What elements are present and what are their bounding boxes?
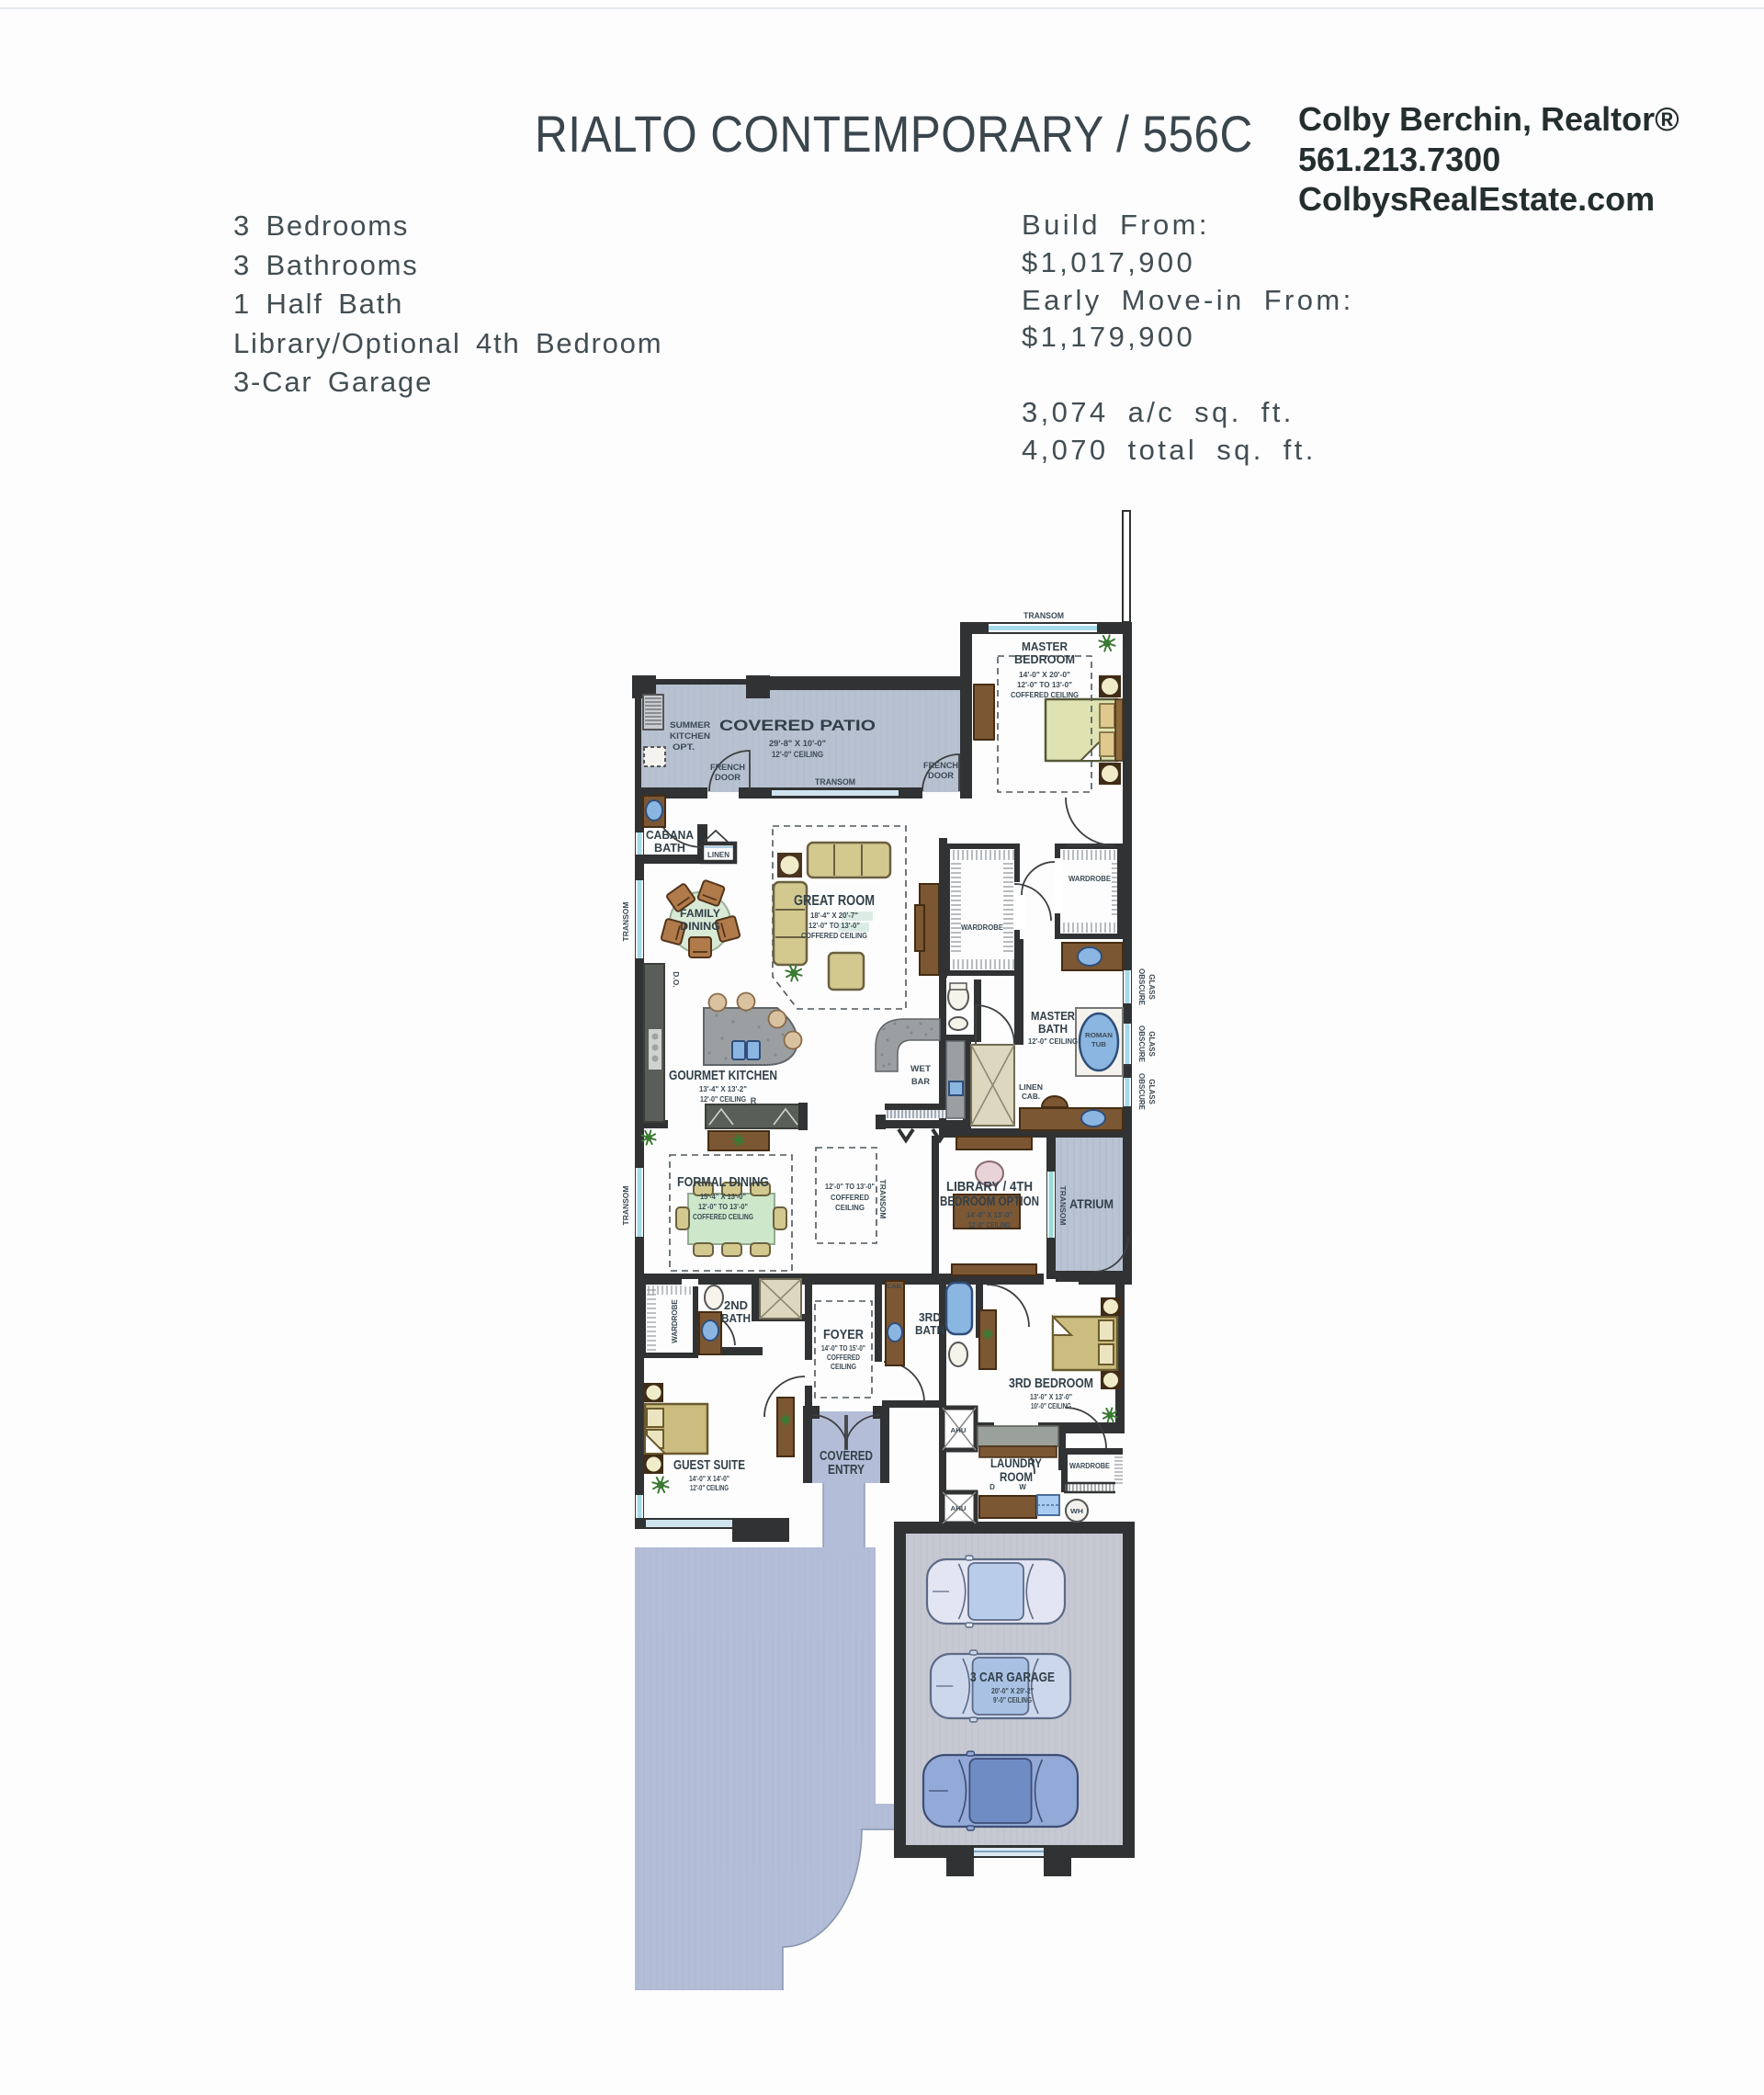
- svg-text:12'-0" TO 13'-0": 12'-0" TO 13'-0": [808, 921, 860, 930]
- svg-text:D.O.: D.O.: [672, 971, 681, 987]
- svg-text:D: D: [989, 1483, 995, 1491]
- svg-text:GLASS: GLASS: [1148, 1079, 1156, 1104]
- svg-text:SUMMER: SUMMER: [670, 720, 710, 730]
- svg-text:CAB.: CAB.: [1022, 1093, 1040, 1101]
- svg-text:WARDROBE: WARDROBE: [671, 1299, 679, 1343]
- svg-text:OPT.: OPT.: [673, 742, 695, 753]
- svg-text:BAR: BAR: [911, 1077, 930, 1087]
- svg-text:COFFERED CEILING: COFFERED CEILING: [1011, 690, 1079, 699]
- svg-text:DINING: DINING: [680, 920, 720, 933]
- svg-text:12'-0" CEILING: 12'-0" CEILING: [968, 1220, 1011, 1229]
- svg-text:BEDROOM OPTION: BEDROOM OPTION: [940, 1194, 1039, 1209]
- svg-text:18'-4" X 20'-7": 18'-4" X 20'-7": [810, 911, 858, 920]
- svg-text:14'-0" X 20'-0": 14'-0" X 20'-0": [1019, 670, 1070, 679]
- svg-text:FRENCH: FRENCH: [923, 761, 958, 770]
- svg-text:2ND: 2ND: [724, 1299, 748, 1312]
- svg-text:3RD: 3RD: [919, 1311, 941, 1324]
- svg-text:WH: WH: [1070, 1509, 1083, 1515]
- svg-text:GLASS: GLASS: [1148, 974, 1156, 1000]
- svg-text:CABANA: CABANA: [646, 829, 694, 842]
- svg-text:TRANSOM: TRANSOM: [1058, 1186, 1068, 1226]
- svg-text:TRANSOM: TRANSOM: [621, 1186, 630, 1226]
- svg-text:LINEN: LINEN: [707, 851, 729, 859]
- svg-text:CEILING: CEILING: [831, 1363, 856, 1371]
- svg-text:12'-0" CEILING: 12'-0" CEILING: [772, 750, 823, 760]
- svg-text:AHU: AHU: [951, 1428, 967, 1434]
- svg-text:BATH: BATH: [654, 842, 685, 855]
- svg-text:14'-0" X 14'-0": 14'-0" X 14'-0": [689, 1475, 729, 1483]
- svg-text:3RD BEDROOM: 3RD BEDROOM: [1009, 1376, 1093, 1391]
- svg-text:MASTER: MASTER: [1022, 640, 1069, 653]
- svg-text:14'-8" X 13'-0": 14'-8" X 13'-0": [967, 1210, 1012, 1219]
- svg-text:TRANSOM: TRANSOM: [815, 777, 855, 787]
- svg-text:29'-8" X 10'-0": 29'-8" X 10'-0": [769, 739, 826, 749]
- svg-text:OBSCURE: OBSCURE: [1137, 1073, 1146, 1111]
- svg-text:WARDROBE: WARDROBE: [961, 923, 1004, 932]
- svg-text:BATH: BATH: [915, 1324, 944, 1337]
- svg-text:LAUNDRY: LAUNDRY: [990, 1455, 1043, 1470]
- svg-text:LIBRARY / 4TH: LIBRARY / 4TH: [946, 1179, 1033, 1195]
- svg-text:GUEST SUITE: GUEST SUITE: [673, 1457, 745, 1473]
- svg-text:LINEN: LINEN: [1019, 1083, 1043, 1092]
- svg-text:BEDROOM: BEDROOM: [1014, 652, 1075, 666]
- svg-text:12'-0" TO 13'-0": 12'-0" TO 13'-0": [825, 1182, 875, 1191]
- svg-text:TUB: TUB: [1091, 1040, 1107, 1048]
- svg-text:15'-4" X 13'-0": 15'-4" X 13'-0": [700, 1192, 746, 1201]
- svg-text:TRANSOM: TRANSOM: [621, 902, 630, 942]
- svg-text:CAB: CAB: [887, 1284, 901, 1290]
- svg-text:WARDROBE: WARDROBE: [1069, 1462, 1111, 1470]
- svg-text:AHU: AHU: [951, 1506, 967, 1512]
- svg-text:13'-4" X 13'-2": 13'-4" X 13'-2": [699, 1084, 747, 1093]
- svg-text:FRENCH: FRENCH: [710, 763, 745, 772]
- svg-text:10'-0" CEILING: 10'-0" CEILING: [1031, 1402, 1071, 1410]
- svg-text:FAMILY: FAMILY: [680, 907, 720, 920]
- svg-text:DOOR: DOOR: [928, 771, 955, 780]
- svg-text:GOURMET KITCHEN: GOURMET KITCHEN: [669, 1068, 777, 1083]
- svg-text:OBSCURE: OBSCURE: [1137, 968, 1146, 1006]
- svg-text:ROMAN: ROMAN: [1085, 1031, 1113, 1039]
- svg-text:FORMAL DINING: FORMAL DINING: [677, 1174, 769, 1190]
- svg-text:COVERED: COVERED: [820, 1449, 873, 1464]
- svg-text:COFFERED CEILING: COFFERED CEILING: [801, 931, 867, 940]
- svg-text:12'-0" CEILING: 12'-0" CEILING: [700, 1094, 746, 1104]
- svg-text:WARDROBE: WARDROBE: [1069, 875, 1112, 883]
- svg-text:TRANSOM: TRANSOM: [878, 1180, 888, 1219]
- svg-text:CEILING: CEILING: [835, 1203, 865, 1212]
- svg-text:KITCHEN: KITCHEN: [670, 731, 710, 742]
- svg-text:14'-0" TO 15'-0": 14'-0" TO 15'-0": [821, 1344, 865, 1353]
- svg-text:COFFERED: COFFERED: [831, 1193, 869, 1202]
- svg-text:12'-0" TO 13'-0": 12'-0" TO 13'-0": [698, 1202, 748, 1211]
- svg-text:MASTER: MASTER: [1031, 1010, 1075, 1023]
- svg-text:COFFERED CEILING: COFFERED CEILING: [693, 1212, 753, 1221]
- svg-text:12'-0" TO 13'-0": 12'-0" TO 13'-0": [1017, 680, 1072, 689]
- svg-text:FOYER: FOYER: [823, 1328, 864, 1342]
- svg-text:BATH: BATH: [1038, 1023, 1068, 1036]
- svg-text:WET: WET: [910, 1064, 931, 1074]
- svg-text:BATH: BATH: [721, 1312, 751, 1325]
- svg-text:13'-0" X 13'-0": 13'-0" X 13'-0": [1030, 1393, 1072, 1401]
- svg-text:OBSCURE: OBSCURE: [1137, 1025, 1146, 1063]
- svg-text:TRANSOM: TRANSOM: [1023, 611, 1064, 620]
- svg-text:3 CAR GARAGE: 3 CAR GARAGE: [970, 1670, 1055, 1685]
- svg-text:DOOR: DOOR: [715, 773, 741, 782]
- svg-text:COVERED PATIO: COVERED PATIO: [719, 718, 876, 734]
- svg-text:COFFERED: COFFERED: [827, 1353, 860, 1362]
- svg-text:20'-0" X 29'-2": 20'-0" X 29'-2": [991, 1687, 1034, 1695]
- svg-text:R: R: [751, 1096, 757, 1105]
- svg-text:ATRIUM: ATRIUM: [1069, 1196, 1114, 1211]
- svg-text:12'-0" CEILING: 12'-0" CEILING: [1028, 1036, 1078, 1046]
- svg-text:GREAT ROOM: GREAT ROOM: [794, 893, 875, 909]
- svg-text:W: W: [1019, 1483, 1026, 1491]
- svg-text:12'-0" CEILING: 12'-0" CEILING: [690, 1484, 729, 1492]
- svg-text:ENTRY: ENTRY: [828, 1463, 865, 1478]
- svg-text:9'-0" CEILING: 9'-0" CEILING: [993, 1696, 1032, 1704]
- svg-text:ROOM: ROOM: [1000, 1469, 1033, 1484]
- svg-text:GLASS: GLASS: [1148, 1031, 1156, 1057]
